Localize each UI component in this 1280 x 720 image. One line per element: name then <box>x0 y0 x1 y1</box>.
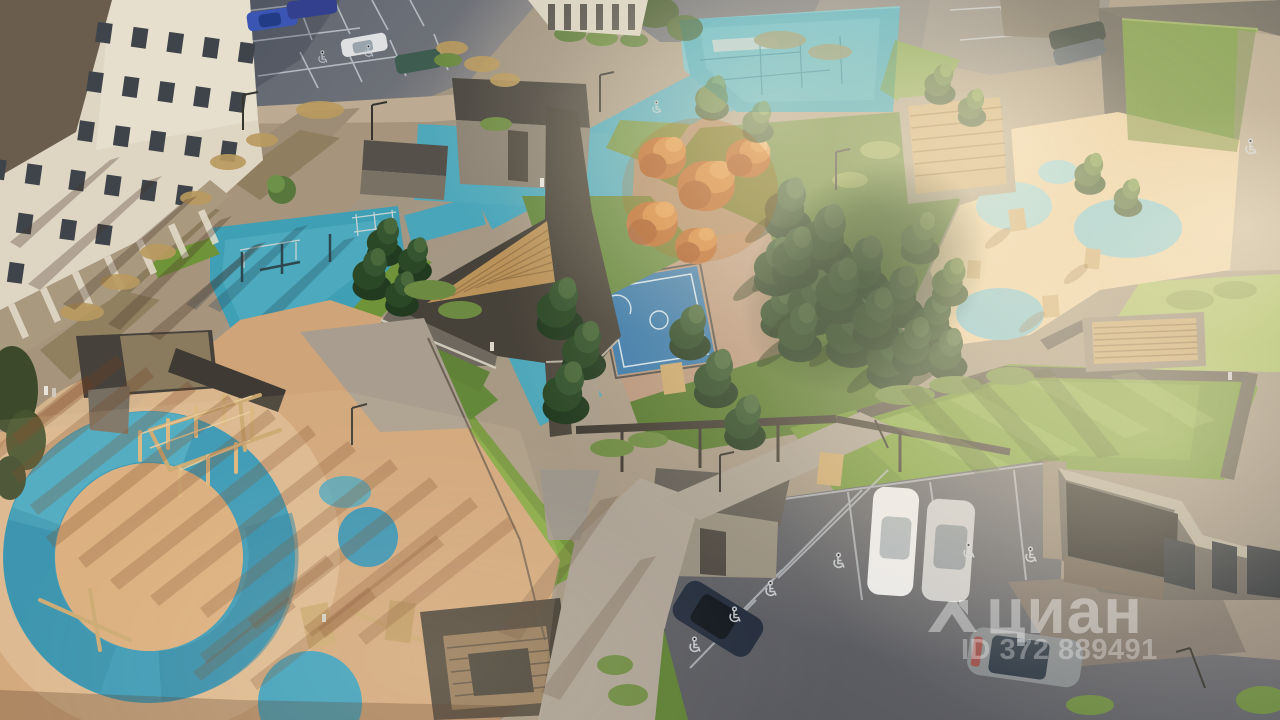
svg-text:ID 372 889491: ID 372 889491 <box>961 634 1158 666</box>
